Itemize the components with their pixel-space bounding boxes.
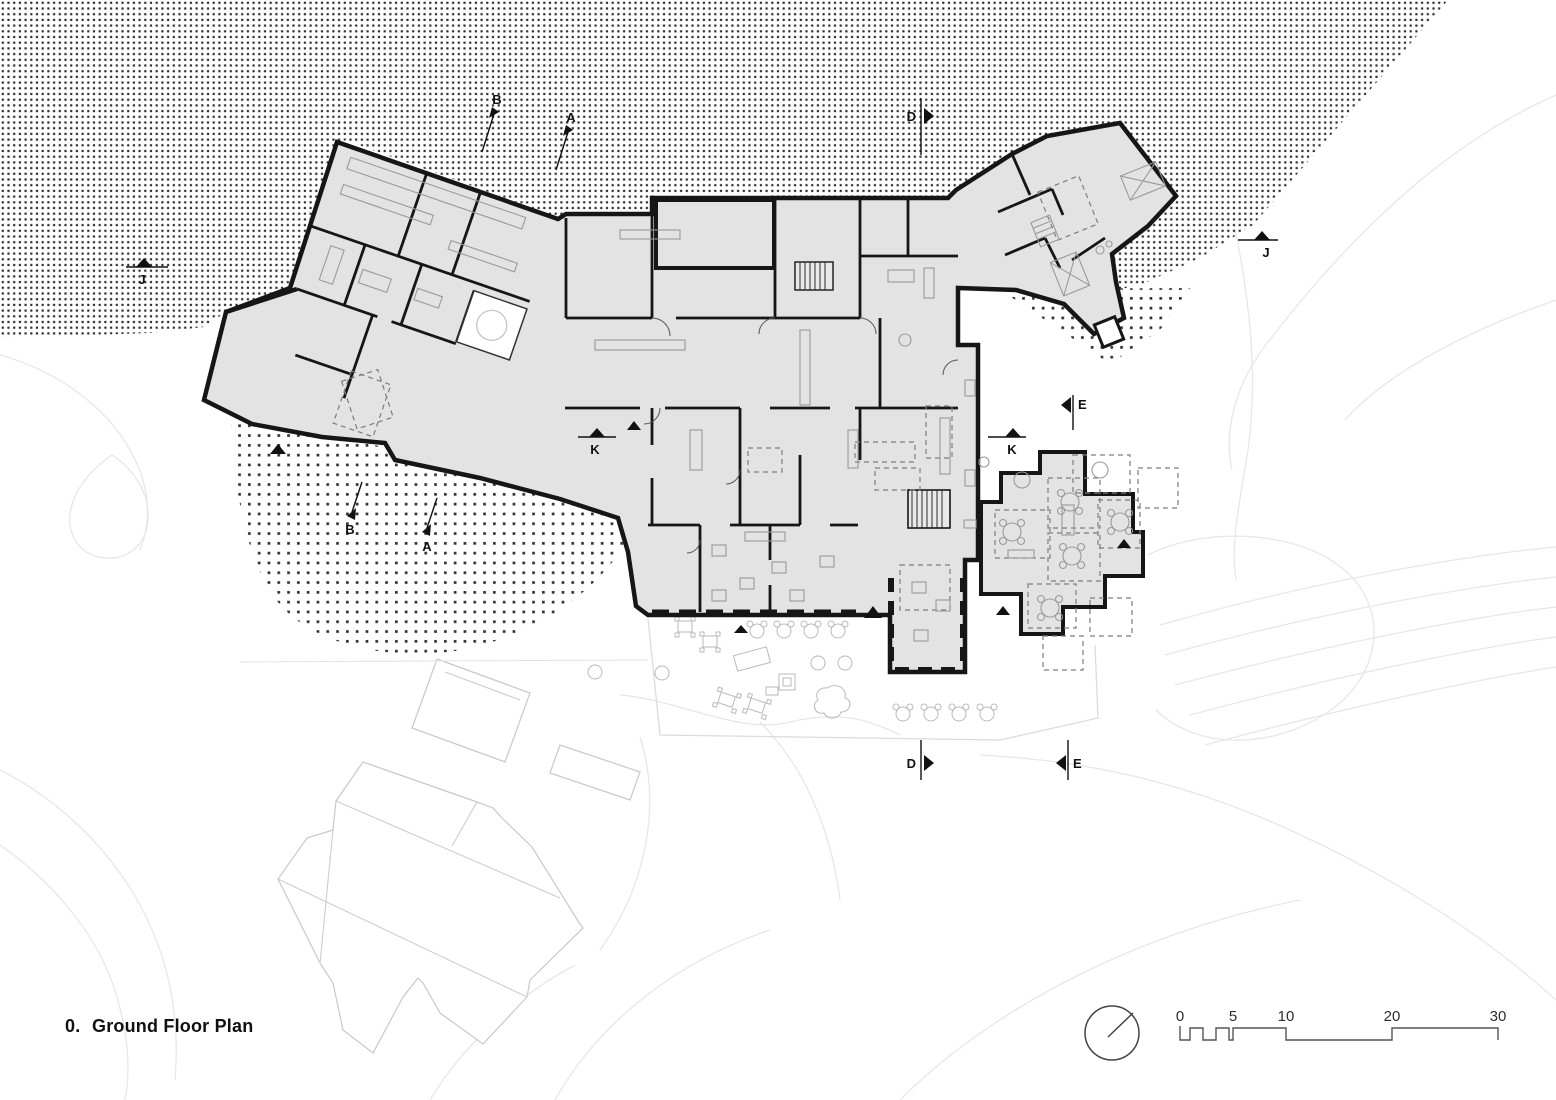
svg-text:A: A [422,539,432,554]
section-marker-k-center: K [988,428,1026,457]
svg-text:D: D [907,756,916,771]
scale-tick-10: 10 [1278,1008,1295,1025]
section-marker-e-bottom: E [1056,740,1082,780]
scale-tick-30: 30 [1490,1008,1507,1025]
svg-text:A: A [566,110,576,125]
svg-text:K: K [1007,442,1017,457]
stair-north [795,262,833,290]
svg-text:E: E [1078,397,1087,412]
svg-text:J: J [1262,245,1269,260]
plan-title-text: Ground Floor Plan [92,1016,253,1036]
scale-tick-5: 5 [1229,1008,1237,1025]
north-arrow-icon [1085,1006,1139,1060]
section-marker-j-right: J [1238,231,1278,260]
neighbor-buildings [278,659,640,1053]
scale-tick-0: 0 [1176,1008,1184,1025]
plan-title: 0. Ground Floor Plan [65,1016,253,1036]
svg-text:E: E [1073,756,1082,771]
floor-plan-canvas: B A D J J E K [0,0,1556,1100]
stair-main [908,490,950,528]
svg-text:J: J [138,272,145,287]
section-marker-d-bottom: D [907,740,934,780]
svg-text:K: K [590,442,600,457]
scale-bar: 0 5 10 20 30 [1176,1008,1507,1040]
ground-floor-plan-sheet: B A D J J E K [0,0,1556,1100]
svg-text:B: B [492,92,501,107]
svg-text:D: D [907,109,916,124]
svg-text:B: B [345,522,354,537]
section-marker-e-right: E [1061,395,1087,430]
scale-tick-20: 20 [1384,1008,1401,1025]
plan-title-number: 0. [65,1016,80,1036]
